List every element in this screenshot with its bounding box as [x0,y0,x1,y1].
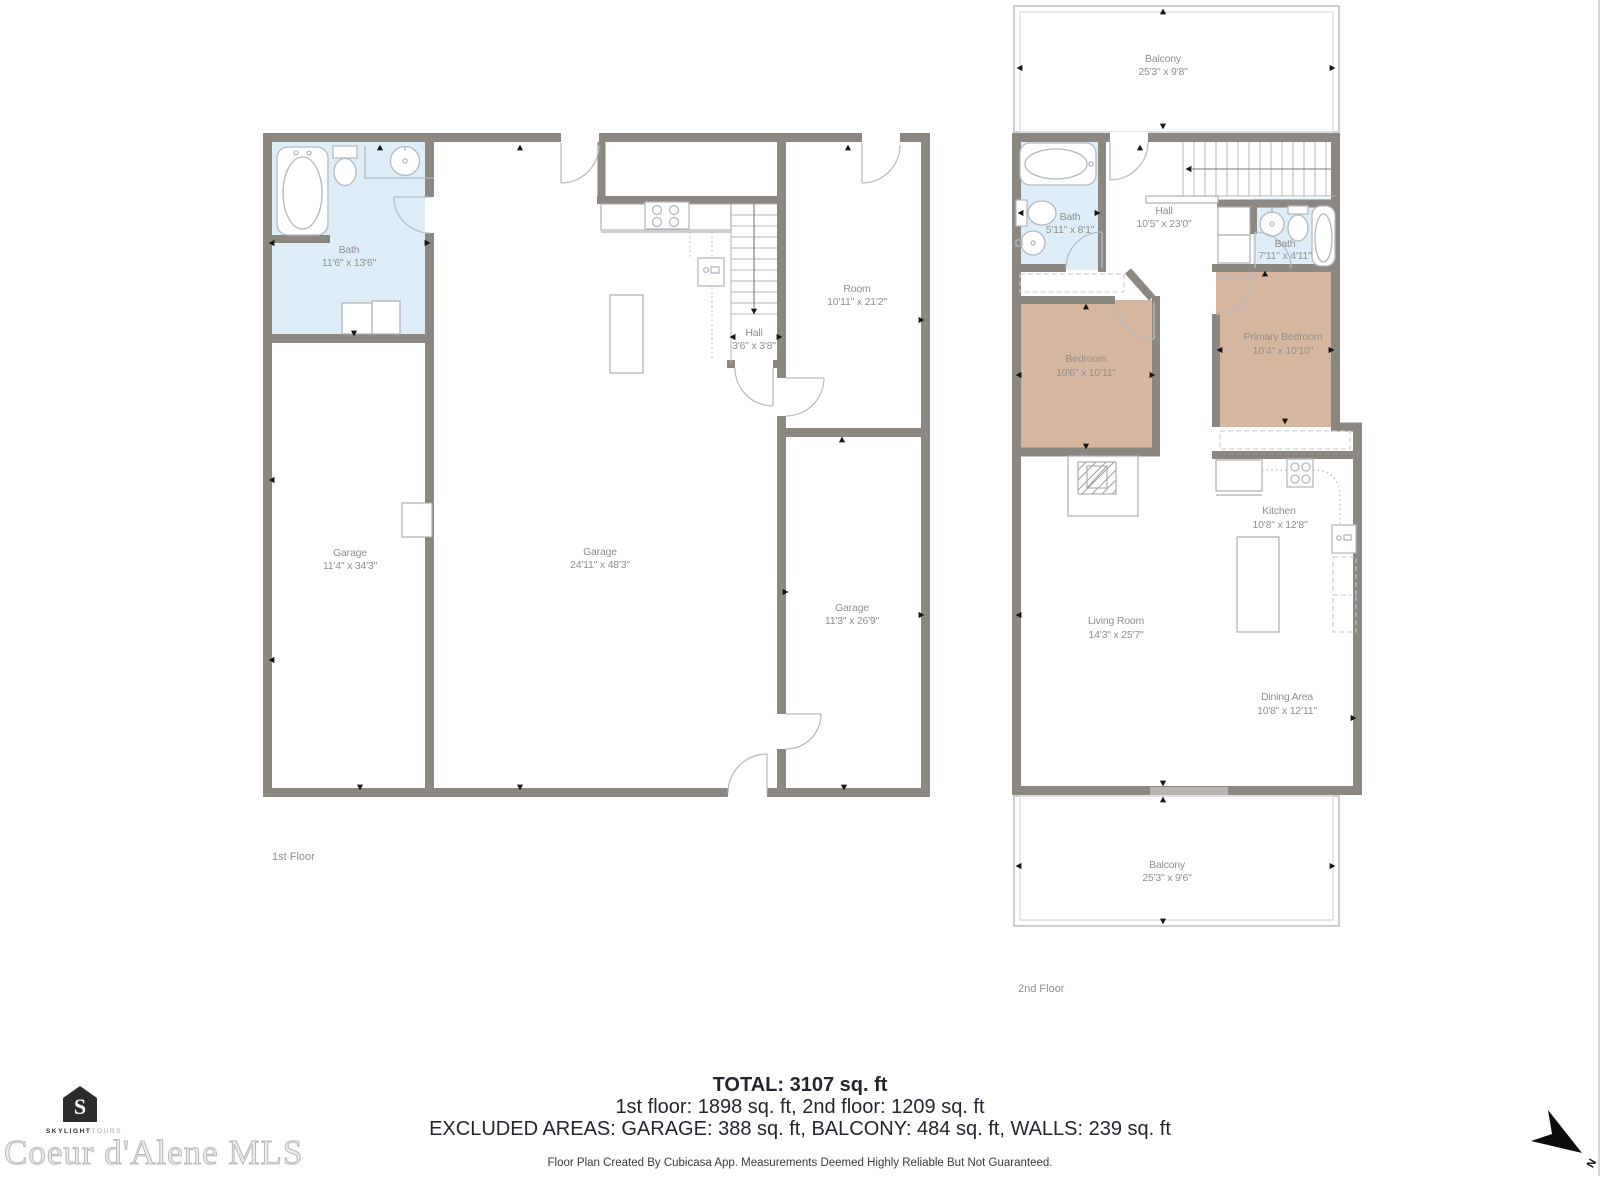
stair-railing [1146,196,1218,203]
room-dims: 10'8" x 12'11" [1257,705,1317,717]
logo-letter: S [74,1094,86,1119]
stove-icon [645,202,689,229]
island-counter [610,295,643,373]
room-label: Living Room [1088,615,1145,627]
room-label: Balcony [1149,859,1186,871]
skylight-tours-logo-icon: S [60,1085,100,1125]
floor2-stairs [1146,142,1336,203]
room-label: Dining Area [1261,691,1313,703]
room-dims: 7'11" x 4'11" [1258,250,1312,262]
room-label: Bedroom [1065,353,1107,365]
room-label: Bath [339,244,360,256]
room-dims: 11'6" x 13'6" [322,257,377,269]
floor-plan-page: { "floor1": { "label": "1st Floor", "roo… [0,0,1600,1176]
room-label: Hall [1155,205,1172,217]
room-dims: 11'4" x 34'3" [323,560,378,572]
floor2-linen-closet [1218,207,1250,263]
washbasin-icon [1021,231,1045,255]
wall-niche [402,503,432,537]
fireplace-hatch [1068,456,1138,516]
north-compass-icon: N [1490,1082,1600,1177]
mls-watermark: Coeur d'Alene MLS [4,1133,303,1173]
room-label: Primary Bedroom [1244,331,1323,343]
island-counter [1237,537,1279,632]
room-dims: 5'11" x 8'1" [1046,224,1095,236]
room-dims: 10'4" x 10'10" [1253,345,1314,357]
room-label: Balcony [1145,53,1182,65]
room-label: Garage [835,602,869,614]
room-label: Garage [583,546,617,558]
branding-block: S SKYLIGHTTOURS Coeur d'Alene MLS [0,1083,330,1173]
room-dims: 24'11" x 48'3" [570,559,630,571]
room-label: Garage [333,547,367,559]
room-label: Bath [1275,238,1296,250]
slider-door-segment [1150,787,1228,795]
toilet-icon [333,146,357,158]
room-label: Bath [1060,211,1081,223]
room-label: Room [843,283,871,295]
floor2-label: 2nd Floor [1018,983,1065,995]
bathtub-icon [277,147,328,235]
room-label: Hall [745,327,762,339]
toilet-icon [1288,206,1308,214]
floor2-kitchen-fixtures [1216,459,1356,632]
vanity-cabinet [372,301,400,334]
vanity-cabinet [342,303,372,334]
floor-plan-canvas: Bath 11'6" x 13'6" Garage 11'4" x 34'3" … [0,0,1600,1010]
room-dims: 10'11" x 21'2" [827,296,887,308]
stove-icon [1287,459,1313,487]
floor1-label: 1st Floor [272,851,315,863]
stairs-up-arrow [1186,166,1192,172]
floor2-plan: Balcony 25'3" x 9'8" Bath 5'11" x 8'1" H… [1012,6,1358,995]
room-dims: 10'5" x 23'0" [1137,218,1192,230]
room-dims: 14'3" x 25'7" [1089,629,1144,641]
floor1-plan: Bath 11'6" x 13'6" Garage 11'4" x 34'3" … [263,132,930,863]
floor1-kitchen-fixtures [601,202,731,373]
floor1-doors [394,143,900,793]
room-dims: 11'3" x 26'9" [825,615,880,627]
room-dims: 3'6" x 3'8" [732,340,776,352]
room-dims: 25'3" x 9'6" [1142,872,1192,884]
room-dims: 10'8" x 12'8" [1253,519,1308,531]
room-dims: 25'3" x 9'8" [1138,66,1188,78]
room-dims: 10'6" x 10'11" [1056,367,1116,379]
room-label: Kitchen [1262,505,1296,517]
